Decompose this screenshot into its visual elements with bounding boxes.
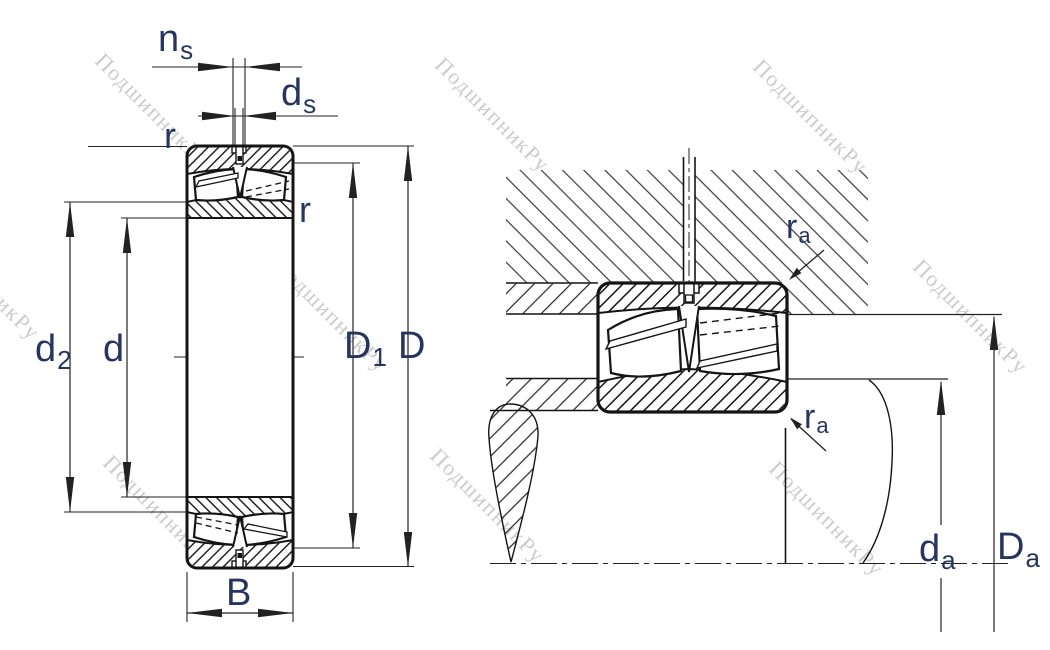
label-d: d [103, 330, 125, 368]
label-d2: d2 [35, 330, 72, 368]
label-D: D [398, 327, 426, 365]
shaft-collar-profile [863, 380, 892, 563]
label-r-upper-left: r [164, 118, 177, 154]
label-Da: Da [997, 528, 1040, 566]
label-r-right: r [299, 192, 312, 228]
label-ra-upper: ra [786, 210, 811, 244]
housing-shoulder-ring [506, 284, 598, 314]
shaft-fillet-section [489, 404, 538, 562]
technical-drawing-canvas [0, 0, 1050, 650]
label-ra-lower: ra [804, 400, 829, 434]
bearing-internals [598, 281, 787, 412]
label-ns: ns [158, 20, 193, 58]
label-ds: ds [281, 74, 316, 112]
label-D1: D1 [344, 327, 387, 365]
bearing-drawing-figure: ПодшипникРу ПодшипникРу ПодшипникРу Подш… [0, 0, 1050, 650]
dimension-lines [941, 317, 994, 632]
label-da: da [919, 530, 956, 568]
label-B: B [226, 574, 252, 612]
